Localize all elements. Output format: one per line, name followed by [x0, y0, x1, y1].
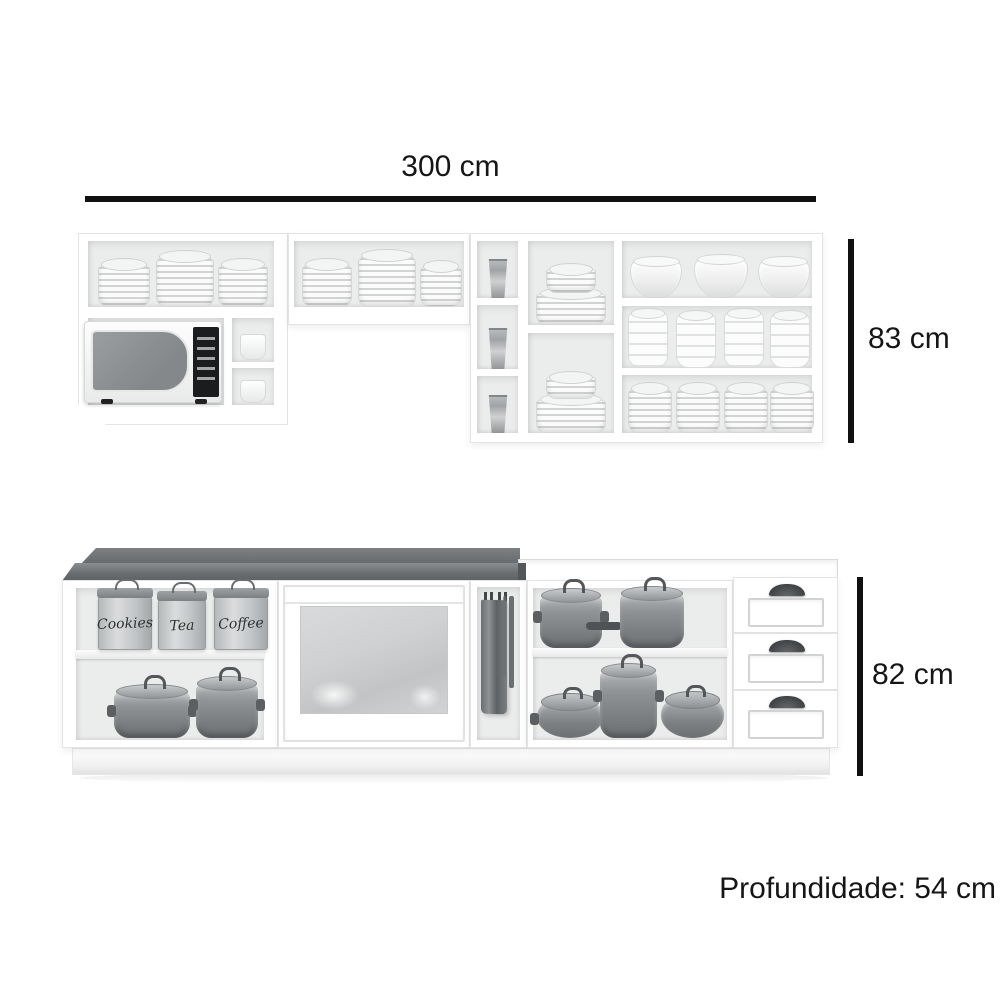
cup — [240, 334, 266, 360]
microwave-buttons — [197, 337, 215, 387]
pot-handle — [533, 611, 542, 623]
microwave — [84, 321, 222, 403]
plinth — [72, 748, 830, 775]
drawer-front — [748, 654, 824, 683]
lower-left-shelf — [76, 650, 264, 659]
plate-stack — [536, 397, 606, 433]
pot-handle — [189, 699, 198, 711]
stock-pot — [600, 671, 657, 738]
bowl-stack — [770, 386, 814, 433]
microwave-foot — [195, 399, 207, 404]
plate-stack — [156, 254, 214, 307]
plate-stack — [98, 262, 150, 307]
pot — [196, 684, 258, 738]
frosted-glass-panel — [300, 606, 448, 714]
bowl-stack — [724, 386, 768, 433]
pot-handle — [593, 690, 602, 702]
saucepan-handle — [586, 622, 622, 630]
plate-stack — [218, 262, 268, 307]
pot — [114, 692, 190, 738]
microwave-control-panel — [193, 327, 219, 397]
door-groove — [285, 602, 463, 604]
upper-height-dimension-label: 83 cm — [868, 324, 950, 354]
canister-tea: Tea — [158, 599, 206, 650]
plate-stack — [420, 264, 462, 307]
plate-stack — [546, 375, 596, 399]
drawer-divider — [733, 689, 838, 691]
lower-height-dimension-label: 82 cm — [872, 660, 954, 690]
width-dimension-line — [85, 196, 816, 202]
canister-cookies: Cookies — [98, 596, 152, 650]
depth-dimension-label: Profundidade: 54 cm — [600, 874, 996, 904]
cup — [240, 380, 266, 403]
pot-handle — [107, 705, 116, 717]
canister-coffee: Coffee — [214, 596, 268, 650]
cup-stack — [770, 313, 810, 368]
plate-stack — [302, 262, 352, 307]
plate-stack — [546, 267, 596, 293]
saucepan — [620, 594, 684, 648]
bowl-stack — [676, 386, 720, 433]
cup-stack — [724, 311, 764, 368]
cup-stack — [628, 311, 668, 368]
drawer-front — [748, 598, 824, 627]
pot-handle — [530, 713, 539, 725]
lower-height-dimension-line — [857, 577, 863, 776]
hanging-utensil — [503, 596, 506, 676]
upper-height-dimension-line — [848, 239, 854, 443]
plate-stack — [536, 291, 606, 325]
canister-tea-label: Tea — [160, 603, 203, 647]
drawer-front — [748, 710, 824, 739]
width-dimension-label: 300 cm — [85, 152, 816, 182]
bowl-stack — [628, 386, 672, 433]
canister-cookies-label: Cookies — [100, 600, 150, 648]
microwave-door — [91, 330, 189, 392]
pot-handle — [600, 611, 609, 623]
countertop-end — [518, 563, 526, 581]
backsplash — [80, 548, 520, 565]
canister-coffee-label: Coffee — [216, 600, 266, 648]
drawer-divider — [733, 632, 838, 634]
pot-handle — [256, 699, 265, 711]
microwave-foot — [101, 399, 113, 404]
kitchen-cabinet-dimension-diagram: 300 cm — [0, 0, 1000, 1000]
cup-stack — [676, 313, 716, 368]
plate-stack — [358, 253, 416, 307]
hanging-utensil — [509, 596, 514, 688]
pot-handle — [655, 690, 664, 702]
